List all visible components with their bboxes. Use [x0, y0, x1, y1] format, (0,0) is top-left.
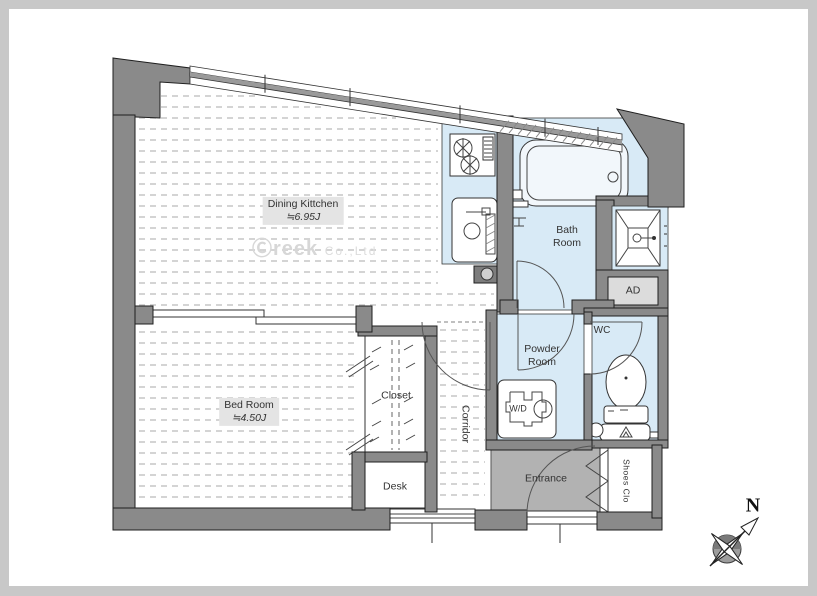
north-label: N	[746, 495, 760, 518]
bed-room-name: Bed Room	[224, 399, 274, 411]
bath-room-label: Bath Room	[553, 224, 581, 250]
kitchen-stove-icon	[450, 134, 495, 176]
kitchen-sink-icon	[452, 198, 497, 262]
dining-kitchen-name: Dining Kittchen	[268, 198, 339, 210]
dining-kitchen-label: Dining Kittchen ≒6.95J	[263, 197, 344, 225]
powder-room-label: Powder Room	[524, 343, 560, 369]
closet-label: Closet	[381, 389, 411, 402]
washer-dryer-label: W/D	[509, 403, 527, 414]
entrance-label: Entrance	[525, 472, 567, 485]
air-duct-label: AD	[626, 284, 641, 297]
dining-kitchen-size: ≒6.95J	[268, 211, 339, 224]
bed-room-size: ≒4.50J	[224, 412, 274, 425]
shoes-closet-label: Shoes Clo	[621, 459, 632, 503]
watermark: Ⓒreek Co.,Ltd	[252, 232, 377, 261]
bed-room-label: Bed Room ≒4.50J	[219, 398, 279, 426]
desk-label: Desk	[383, 480, 407, 493]
floor-plan: Dining Kittchen ≒6.95J Bath Room Bed Roo…	[0, 0, 817, 596]
corridor-label: Corridor	[458, 405, 471, 443]
wc-label: WC	[594, 325, 611, 338]
floor-plan-drawing	[0, 0, 817, 596]
